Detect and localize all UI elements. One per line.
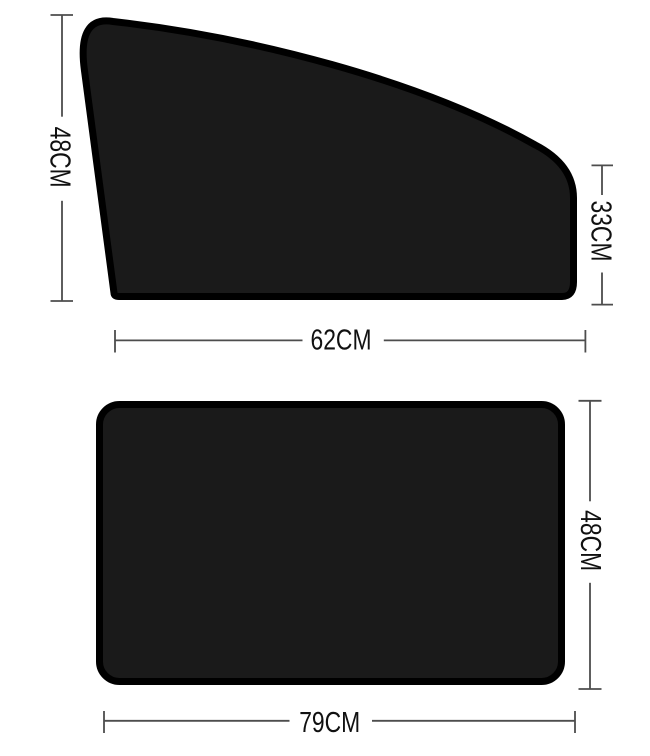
- svg-text:79CM: 79CM: [299, 707, 360, 739]
- svg-text:48CM: 48CM: [43, 127, 75, 188]
- svg-text:62CM: 62CM: [311, 325, 372, 357]
- svg-text:48CM: 48CM: [574, 510, 606, 571]
- svg-text:33CM: 33CM: [584, 201, 616, 262]
